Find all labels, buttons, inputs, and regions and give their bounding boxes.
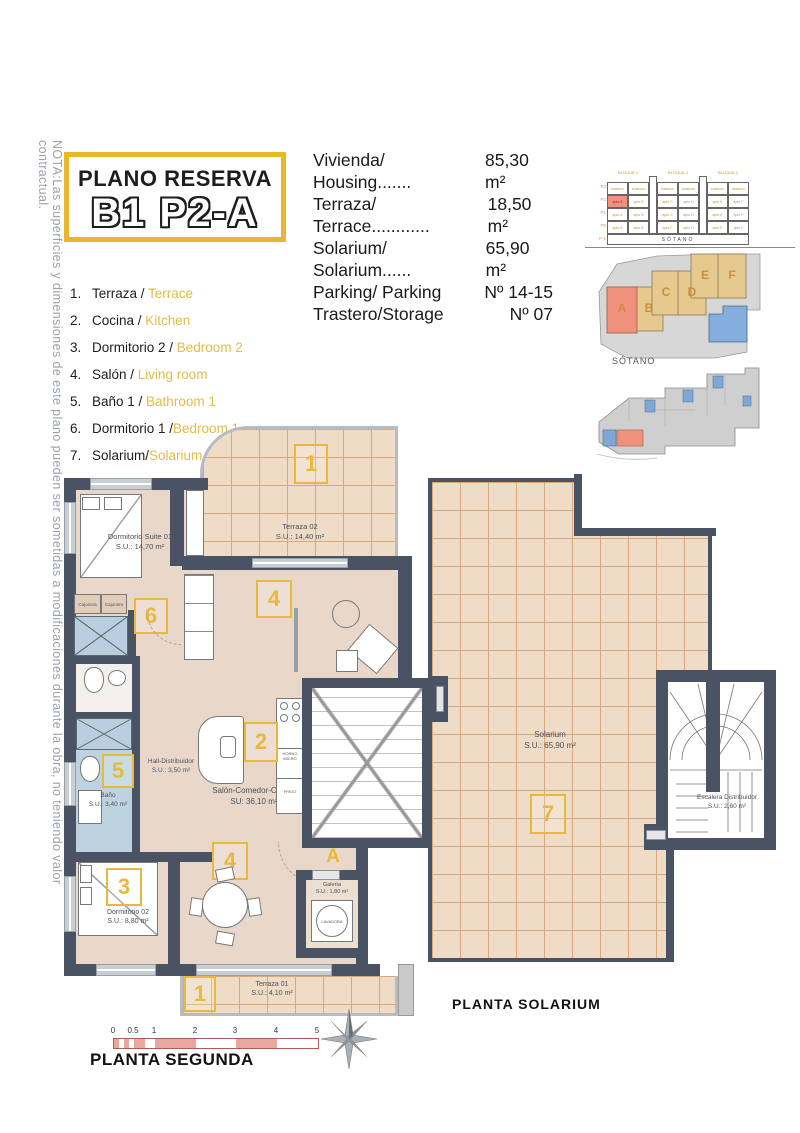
legend-item: 1.Terraza / Terrace	[70, 286, 193, 301]
planter-slot	[436, 686, 444, 712]
summary-label: Vivienda/ Housing.......	[313, 149, 485, 193]
terrace-sliding-door	[196, 964, 332, 976]
summary-row: Trastero/StorageNº 07	[313, 303, 553, 325]
door-slot	[312, 870, 340, 880]
dorm02-label: Dormitorio 02S.U.: 8,80 m²	[88, 908, 168, 927]
terrace-sliding-door	[252, 558, 348, 568]
summary-label: Terraza/ Terrace............	[313, 193, 488, 237]
exterior-patch	[368, 848, 412, 966]
elevation-block-header: BLOQUE 2	[658, 170, 698, 175]
small-table	[336, 650, 358, 672]
summary-value: 65,90 m²	[486, 237, 553, 281]
legend-item: 3.Dormitorio 2 / Bedroom 2	[70, 340, 243, 355]
elevation-floor-label: P1	[593, 210, 606, 215]
terraza02-label: Terraza 02S.U.: 14,40 m²	[226, 522, 374, 542]
summary-value: Nº 07	[510, 303, 553, 325]
cooktop-burner	[292, 714, 300, 722]
sotano-label: SÓTANO	[612, 356, 692, 366]
elevation-cell: apto A	[607, 221, 628, 234]
building-letter: F	[724, 268, 740, 284]
title-line2: B1 P2-A	[69, 192, 281, 234]
legend-item: 5.Baño 1 / Bathroom 1	[70, 394, 216, 409]
wall	[574, 528, 716, 536]
ground-line	[585, 247, 795, 248]
counter-divider	[276, 748, 304, 749]
elevation-cell: apto E	[707, 221, 728, 234]
elevation-cell: solarium	[628, 182, 649, 195]
elevation-floor-label: P3	[593, 184, 606, 189]
scale-tick: 3	[228, 1026, 242, 1035]
elevation-cell: apto B	[628, 208, 649, 221]
building-letter: B	[641, 301, 657, 317]
elevation-cell: apto D	[678, 208, 699, 221]
window	[64, 762, 76, 806]
summary-row: Parking/ ParkingNº 14-15	[313, 281, 553, 303]
elevation-floor-label: P-1	[593, 236, 606, 241]
scale-tick: 1	[147, 1026, 161, 1035]
room-tag-terraza01: 1	[184, 976, 216, 1012]
door-slot	[646, 830, 666, 840]
pillow	[80, 887, 92, 905]
exterior-patch	[578, 474, 716, 530]
title-line1: PLANO RESERVA	[69, 166, 281, 192]
window	[64, 502, 76, 554]
counter-divider	[276, 778, 304, 779]
elevation-cell: apto A	[607, 208, 628, 221]
wall	[170, 490, 184, 566]
room-tag-solarium: 7	[530, 794, 566, 834]
sofa	[184, 574, 214, 660]
elevation-stair-tower	[699, 176, 707, 234]
summary-label: Parking/ Parking	[313, 281, 441, 303]
disclaimer-note: NOTA:Las superficies y dimensiones de es…	[36, 140, 64, 950]
toilet	[84, 667, 104, 693]
entrance-tag: A	[320, 844, 346, 870]
summary-value: 85,30 m²	[485, 149, 553, 193]
summary-label: Trastero/Storage	[313, 303, 444, 325]
elevation-cell: apto C	[657, 208, 678, 221]
toilet	[80, 756, 100, 782]
elevation-block-header: BLOQUE 1	[608, 170, 648, 175]
stairs-up	[312, 688, 422, 838]
elevation-cell: apto D	[678, 195, 699, 208]
elevation-floor-label: P2	[593, 197, 606, 202]
elevation-cell: apto C	[657, 195, 678, 208]
room-tag-salon: 4	[256, 580, 292, 618]
window	[64, 876, 76, 932]
elevation-cell: solarium	[607, 182, 628, 195]
elevation-cell: solarium	[678, 182, 699, 195]
oven-label: HORNO MICRO	[277, 752, 303, 762]
side-table	[332, 600, 360, 628]
scale-tick: 2	[188, 1026, 202, 1035]
bano-label: BañoS.U.: 3,40 m²	[80, 792, 136, 810]
legend-item: 6.Dormitorio 1 /Bedroom 1	[70, 421, 239, 436]
wc-floor	[76, 664, 132, 712]
compass-rose-icon	[320, 1008, 378, 1070]
room-tag-bano: 5	[102, 754, 134, 788]
elevation-cell: apto D	[678, 221, 699, 234]
party-wall	[398, 964, 414, 1016]
solarium-caption: PLANTA SOLARIUM	[452, 996, 601, 1012]
hall-label: Hall-DistribuidorS.U.: 3,50 m²	[138, 758, 204, 776]
wall	[574, 474, 582, 536]
building-letter: D	[684, 285, 700, 301]
room-tag-cocina: 2	[244, 722, 278, 762]
elevation-stair-tower	[649, 176, 657, 234]
escalera-label: Escalera DistribuidorS.U.: 2,60 m²	[682, 794, 772, 812]
pillow	[82, 497, 100, 510]
cooktop-burner	[280, 702, 288, 710]
window	[96, 964, 156, 976]
elevation-cell: apto F	[728, 221, 749, 234]
wall	[398, 556, 412, 690]
summary-label: Solarium/ Solarium......	[313, 237, 486, 281]
stair-center-wall	[706, 682, 720, 792]
elevation-cell: solarium	[728, 182, 749, 195]
galeria-label: GaleríaS.U.: 1,80 m²	[306, 882, 358, 897]
chair	[247, 897, 262, 917]
summary-value: 18,50 m²	[488, 193, 553, 237]
wall	[64, 656, 136, 664]
plan-sheet: NOTA:Las superficies y dimensiones de es…	[0, 0, 800, 1133]
solarium-label: SolariumS.U.: 65,90 m²	[498, 730, 602, 752]
elevation-cell: apto F	[728, 208, 749, 221]
summary-row: Vivienda/ Housing.......85,30 m²	[313, 149, 553, 193]
elevation-cell: apto C	[657, 221, 678, 234]
cajonera: Cajonera	[74, 594, 101, 614]
legend-item: 2.Cocina / Kitchen	[70, 313, 190, 328]
sink	[108, 670, 126, 686]
cajonera: Cajonera	[101, 594, 127, 614]
shower	[76, 718, 132, 750]
elevation-cell: apto F	[728, 195, 749, 208]
wardrobe-closet	[74, 616, 128, 656]
wall	[64, 852, 214, 862]
legend-item: 4.Salón / Living room	[70, 367, 208, 382]
elevation-sotano-band: SÓTANO	[607, 234, 749, 245]
scale-tick: 0.5	[126, 1026, 140, 1035]
terraza01-label: Terraza 01S.U.: 4,10 m²	[224, 980, 320, 999]
building-letter: C	[658, 285, 674, 301]
scale-bar	[113, 1038, 319, 1049]
room-tag-dorm02: 3	[106, 868, 142, 906]
cooktop-burner	[280, 714, 288, 722]
room-tag-terraza02: 1	[294, 444, 328, 484]
scale-tick: 0	[106, 1026, 120, 1035]
building-letter: E	[697, 268, 713, 284]
elevation-cell: solarium	[657, 182, 678, 195]
elevation-cell: solarium	[707, 182, 728, 195]
elevation-block-header: BLOQUE 3	[708, 170, 748, 175]
fridge-label: FRIGO	[277, 790, 303, 795]
suite-label: Dormitorio Suite 01S.U.: 14,70 m²	[88, 532, 192, 552]
summary-row: Terraza/ Terrace............18,50 m²	[313, 193, 553, 237]
elevation-cell: apto E	[707, 195, 728, 208]
scale-seg-frame	[114, 1039, 318, 1048]
dining-table	[202, 882, 248, 928]
island-sink	[220, 736, 236, 758]
wall	[666, 848, 674, 962]
scale-tick: 4	[269, 1026, 283, 1035]
wall	[168, 852, 180, 972]
summary-value: Nº 14-15	[484, 281, 553, 303]
sotano-map	[595, 366, 763, 464]
elevation-cell: apto E	[707, 208, 728, 221]
exterior-patch	[670, 848, 716, 966]
pillow	[104, 497, 122, 510]
window	[90, 478, 152, 490]
legend-item: 7.Solarium/Solarium	[70, 448, 202, 463]
summary-row: Solarium/ Solarium......65,90 m²	[313, 237, 553, 281]
plan-caption: PLANTA SEGUNDA	[90, 1050, 254, 1070]
building-letter: A	[614, 301, 630, 317]
title-box: PLANO RESERVA B1 P2-A	[64, 152, 286, 242]
elevation-cell: apto B	[628, 195, 649, 208]
pillow	[80, 865, 92, 883]
elevation-floor-label: P0	[593, 223, 606, 228]
cooktop-burner	[292, 702, 300, 710]
elevation-keyplan: BLOQUE 1 BLOQUE 2 BLOQUE 3 P3 P2 P1 P0 P…	[593, 170, 769, 252]
washing-machine-drum: LAVADORA	[316, 905, 348, 937]
elevation-cell: apto B	[628, 221, 649, 234]
summary-table: Vivienda/ Housing.......85,30 m² Terraza…	[313, 149, 553, 325]
elevation-cell: apto A	[607, 195, 628, 208]
tv-unit	[294, 608, 298, 672]
